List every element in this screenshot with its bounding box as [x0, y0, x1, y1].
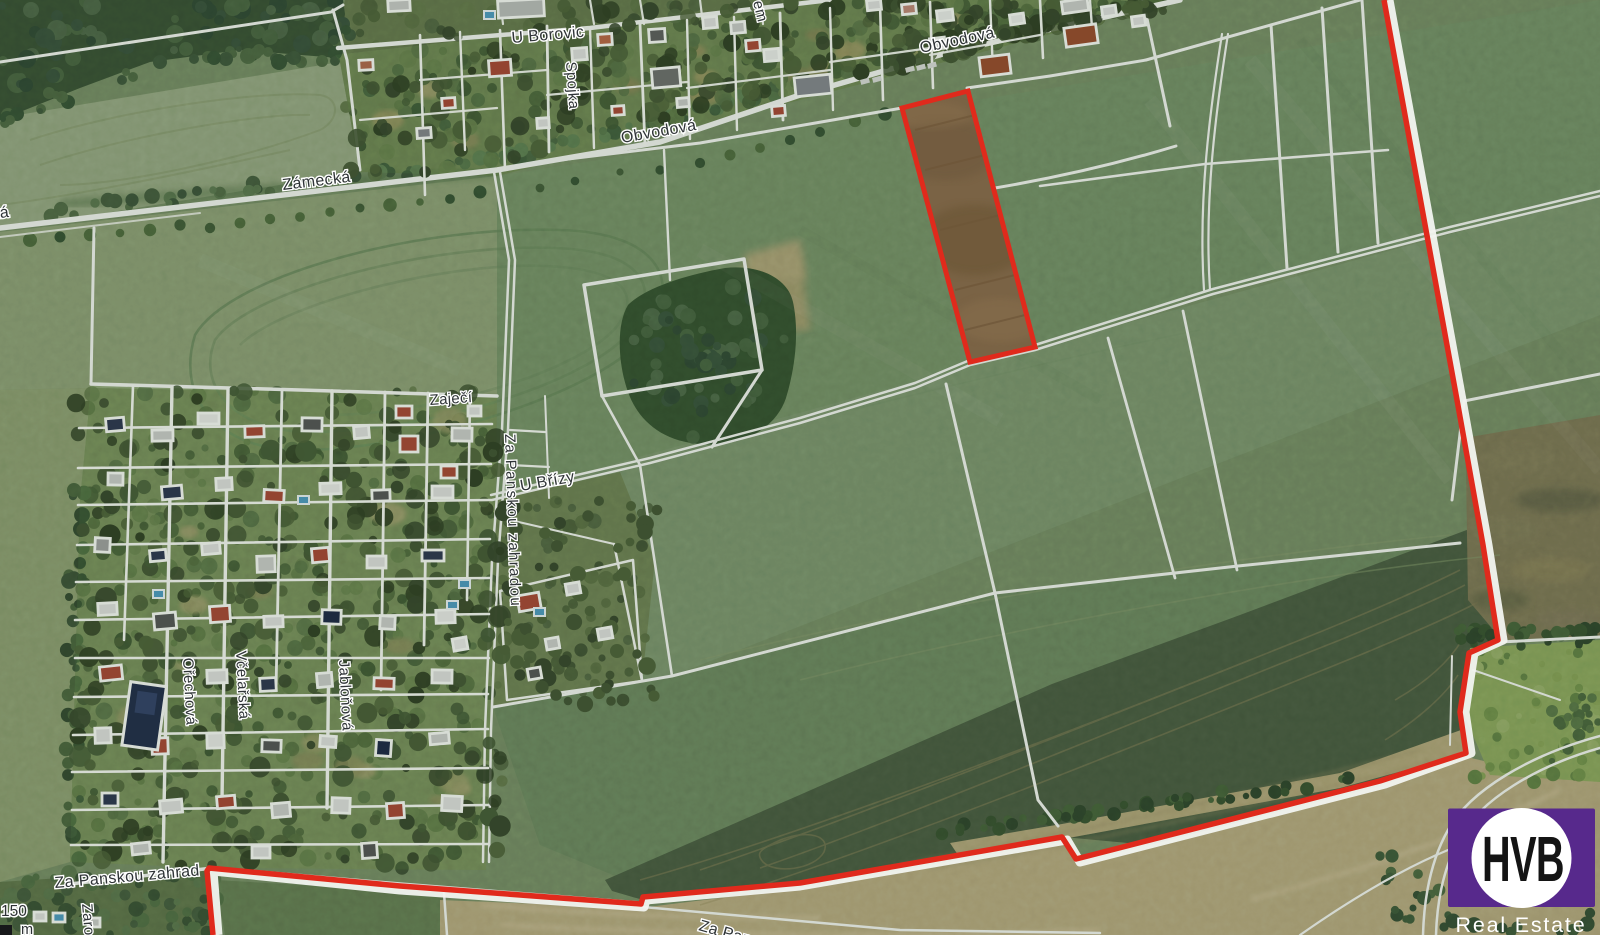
svg-text:Včelařská: Včelařská: [232, 650, 253, 720]
svg-text:Spojka: Spojka: [562, 61, 582, 110]
svg-text:150: 150: [1, 903, 27, 920]
svg-text:Zaječí: Zaječí: [429, 389, 473, 409]
svg-text:m: m: [21, 922, 33, 935]
svg-text:Real Estate: Real Estate: [1456, 913, 1587, 935]
svg-text:Zaro: Zaro: [78, 903, 98, 935]
svg-text:HVB: HVB: [1482, 825, 1564, 896]
svg-text:Ořechová: Ořechová: [179, 657, 200, 726]
